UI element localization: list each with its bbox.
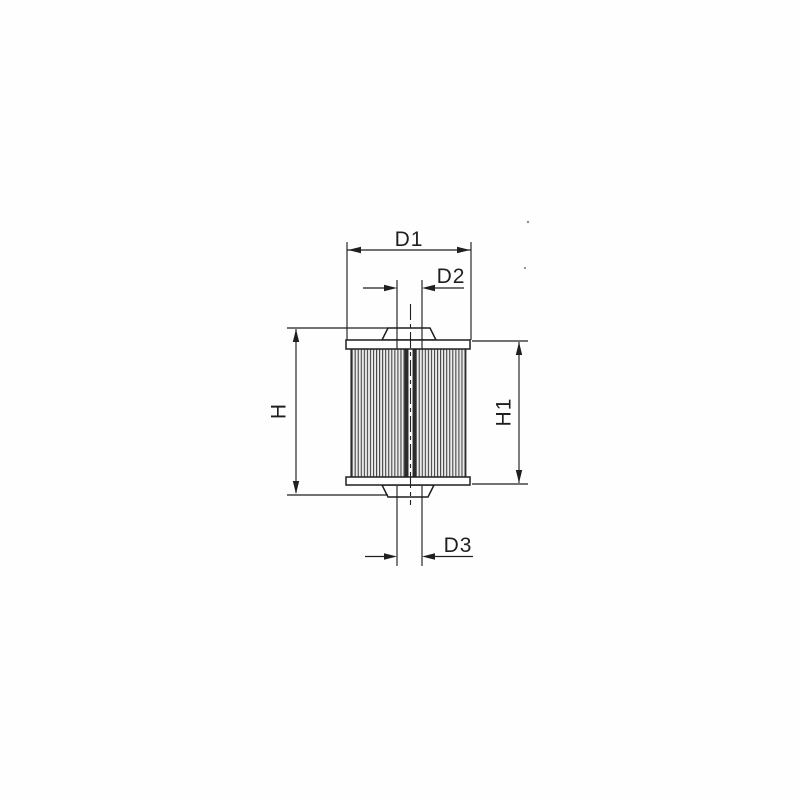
h1-arrow-top-icon xyxy=(516,342,522,355)
d1-label: D1 xyxy=(395,228,424,251)
center-tube-right-wall xyxy=(413,349,417,477)
h-arrow-top-icon xyxy=(293,329,299,342)
d3-arrow-right-icon xyxy=(422,553,435,559)
h-label: H xyxy=(268,403,291,419)
top-neck-collar xyxy=(382,328,436,340)
scan-speck xyxy=(524,267,526,269)
h1-label: H1 xyxy=(493,398,516,427)
filter-dimension-diagram: D1 D2 D3 H xyxy=(0,0,800,800)
drawing-canvas: D1 D2 D3 H xyxy=(0,0,800,800)
bottom-neck-collar xyxy=(382,485,434,497)
d2-arrow-right-icon xyxy=(422,285,435,291)
d2-arrow-left-icon xyxy=(384,285,397,291)
bottom-end-cap xyxy=(346,477,470,485)
scan-speck xyxy=(527,221,529,223)
d2-label: D2 xyxy=(437,265,466,288)
d3-arrow-left-icon xyxy=(384,553,397,559)
h1-arrow-bottom-icon xyxy=(516,470,522,483)
h-arrow-bottom-icon xyxy=(293,481,299,494)
dimension-h1: H1 xyxy=(472,341,528,484)
dimension-d3: D3 xyxy=(365,486,473,566)
d1-arrow-right-icon xyxy=(457,247,470,253)
filter-element xyxy=(346,328,470,497)
center-tube-left-wall xyxy=(405,349,409,477)
top-end-cap xyxy=(346,340,470,349)
d3-label: D3 xyxy=(444,534,473,557)
d1-arrow-left-icon xyxy=(348,247,361,253)
